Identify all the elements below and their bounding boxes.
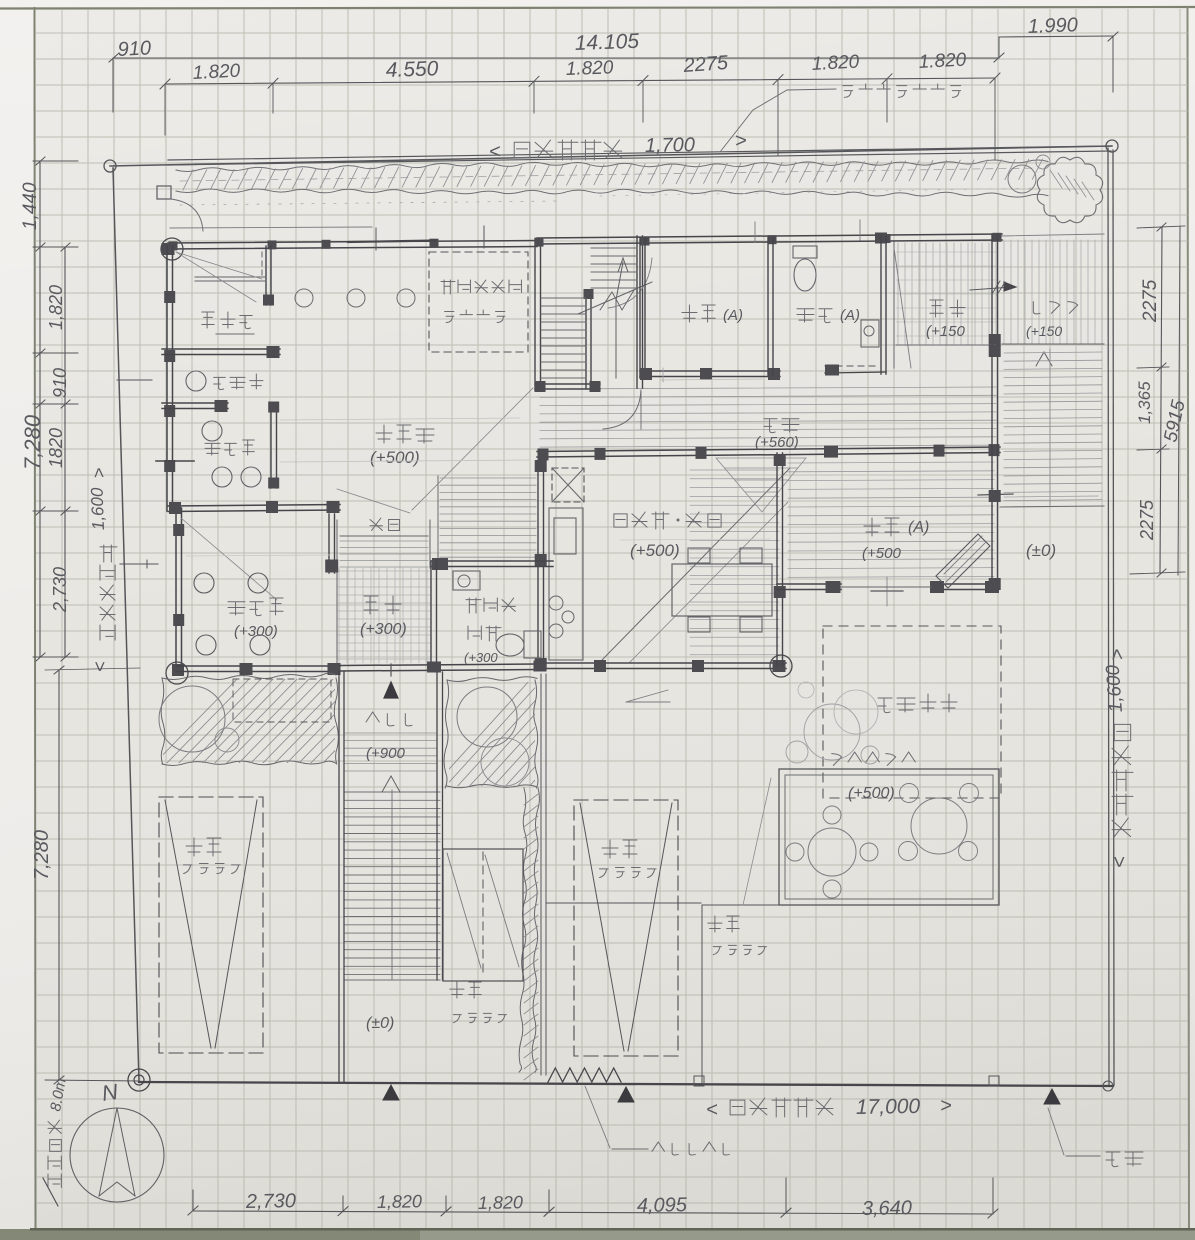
svg-text:1,820: 1,820: [377, 1191, 422, 1212]
svg-text:1.990: 1.990: [1027, 14, 1078, 38]
svg-text:2275: 2275: [682, 52, 730, 77]
svg-text:(+560): (+560): [755, 434, 799, 451]
svg-text:1.820: 1.820: [565, 57, 614, 80]
svg-text:(+300): (+300): [234, 623, 278, 640]
svg-text:<: <: [1109, 856, 1131, 868]
svg-text:(+500): (+500): [630, 541, 680, 560]
svg-text:17,000: 17,000: [856, 1095, 921, 1119]
svg-text:(A): (A): [908, 519, 929, 536]
svg-text:>: >: [89, 467, 109, 478]
svg-text:2,730: 2,730: [245, 1190, 296, 1213]
svg-text:1,600: 1,600: [1103, 664, 1127, 713]
svg-text:1,440: 1,440: [20, 182, 41, 230]
svg-text:(+500): (+500): [370, 448, 420, 467]
svg-text:2,730: 2,730: [50, 567, 70, 613]
svg-text:1,600: 1,600: [88, 487, 108, 531]
svg-text:<: <: [706, 1099, 718, 1121]
svg-text:(+500: (+500: [862, 545, 901, 562]
svg-text:<: <: [489, 141, 501, 163]
svg-text:3,640: 3,640: [862, 1197, 912, 1220]
svg-text:7,280: 7,280: [31, 830, 53, 880]
svg-text:(±0): (±0): [1026, 541, 1056, 560]
svg-text:4,095: 4,095: [637, 1194, 688, 1217]
svg-text:(±0): (±0): [366, 1015, 394, 1032]
svg-text:1.820: 1.820: [811, 52, 860, 75]
svg-text:1,365: 1,365: [1135, 381, 1154, 424]
svg-text:1.820: 1.820: [192, 61, 241, 84]
svg-text:(+500): (+500): [848, 785, 895, 802]
svg-text:1.820: 1.820: [918, 50, 967, 73]
svg-text:(+300): (+300): [360, 621, 407, 638]
svg-text:2275: 2275: [1140, 279, 1161, 323]
svg-text:4.550: 4.550: [385, 57, 439, 82]
svg-text:(A): (A): [840, 307, 860, 324]
svg-text:<: <: [90, 661, 110, 672]
svg-text:(+150: (+150: [926, 323, 965, 340]
svg-text:1,700: 1,700: [645, 134, 695, 157]
svg-text:(+900: (+900: [366, 745, 405, 762]
svg-text:14.105: 14.105: [574, 30, 639, 55]
svg-text:2275: 2275: [1137, 499, 1157, 541]
svg-text:910: 910: [50, 368, 70, 398]
svg-text:>: >: [735, 130, 747, 152]
svg-text:(+300: (+300: [464, 650, 498, 665]
svg-text:>: >: [1106, 648, 1129, 661]
svg-text:910: 910: [117, 37, 151, 61]
svg-text:>: >: [940, 1095, 952, 1117]
svg-text:1,820: 1,820: [46, 285, 66, 330]
svg-text:7,280: 7,280: [20, 414, 45, 470]
svg-text:(A): (A): [723, 307, 743, 324]
svg-text:1820: 1820: [46, 428, 66, 468]
svg-text:(+150: (+150: [1026, 323, 1062, 339]
svg-text:1,820: 1,820: [478, 1192, 523, 1213]
